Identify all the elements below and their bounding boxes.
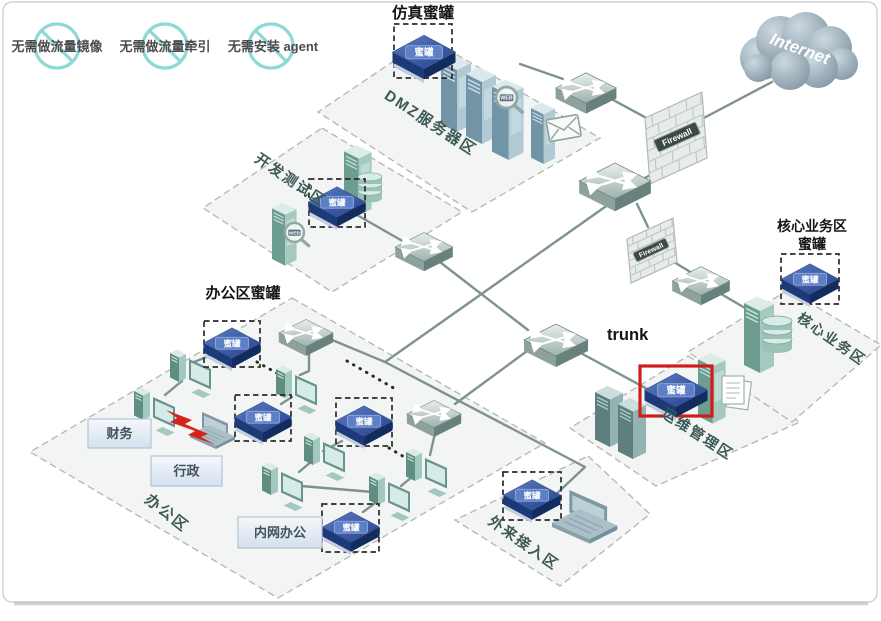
server [618, 398, 646, 459]
restriction-label: 无需安装 agent [227, 39, 319, 54]
trunk-label: trunk [607, 326, 649, 344]
database-disks-icon [358, 173, 382, 203]
office-honeypot-title: 办公区蜜罐 [205, 284, 280, 302]
office-group-label: 行政 [172, 464, 200, 479]
documents-icon [722, 376, 752, 410]
office-group-label: 财务 [106, 426, 133, 441]
core-honeypot-title-line2: 蜜罐 [798, 236, 826, 252]
simulation-honeypot-title: 仿真蜜罐 [392, 3, 455, 22]
core-honeypot-title-line1: 核心业务区 [777, 218, 847, 234]
database-disks-icon [762, 316, 792, 353]
mail-envelope-icon [546, 114, 581, 141]
restriction-label: 无需做流量镜像 [10, 39, 103, 54]
office-group-label: 内网办公 [254, 525, 306, 540]
server [466, 68, 496, 145]
office-group-box: 行政 [151, 456, 222, 486]
office-group-box: 内网办公 [238, 517, 322, 548]
diagram-canvas: 蜜罐 [0, 0, 881, 621]
network-topology-diagram: 蜜罐 [0, 0, 881, 621]
office-group-box: 财务 [88, 419, 151, 448]
restriction-label: 无需做流量牵引 [118, 39, 210, 54]
